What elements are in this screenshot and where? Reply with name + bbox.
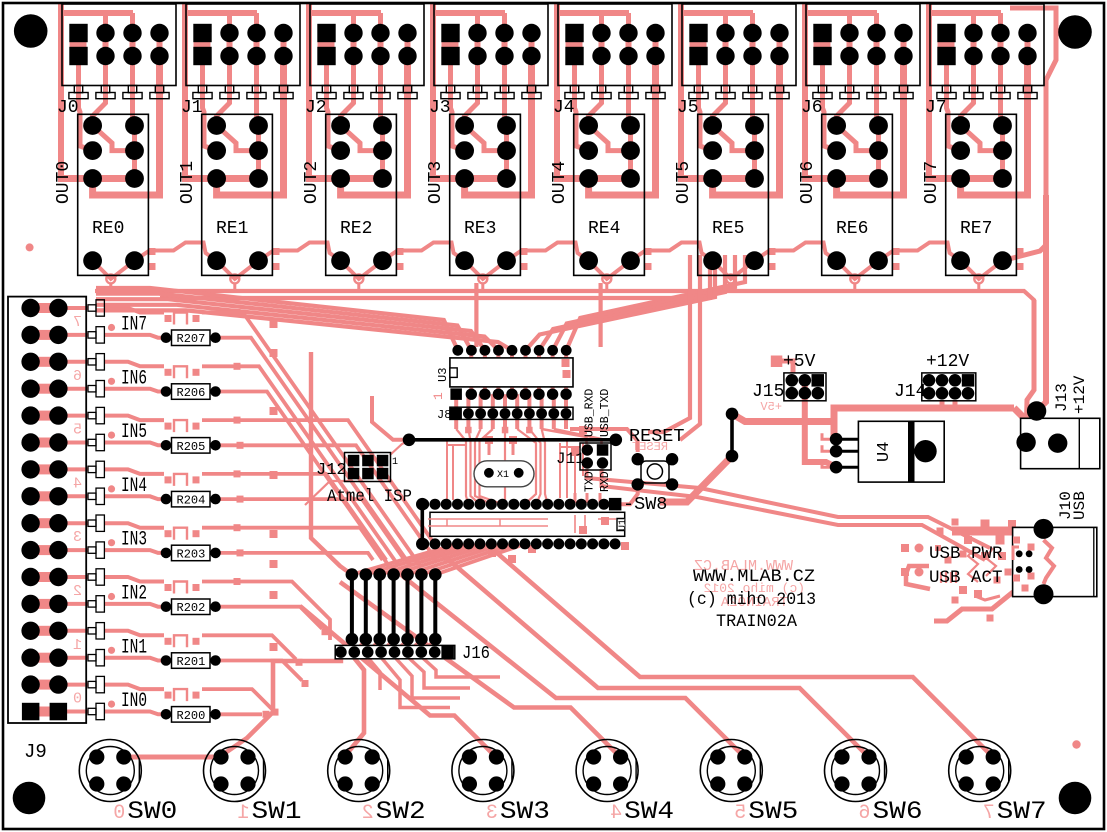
svg-text:IN4: IN4	[121, 475, 147, 498]
svg-text:RE6: RE6	[836, 219, 868, 239]
svg-text:(c) miho 2013: (c) miho 2013	[687, 590, 816, 610]
svg-text:3: 3	[73, 529, 82, 546]
svg-text:5: 5	[73, 422, 82, 439]
svg-text:5: 5	[734, 802, 746, 825]
svg-text:RE0: RE0	[92, 219, 124, 239]
svg-text:RE2: RE2	[340, 219, 372, 239]
svg-text:J1: J1	[181, 98, 203, 118]
svg-text:IN0: IN0	[121, 690, 147, 713]
svg-text:SW6: SW6	[873, 797, 923, 826]
svg-text:R202: R202	[177, 601, 206, 615]
svg-text:J7: J7	[925, 98, 947, 118]
svg-text:0: 0	[113, 802, 125, 825]
svg-text:R200: R200	[177, 709, 206, 723]
svg-text:1: 1	[237, 802, 249, 825]
svg-text:SW0: SW0	[127, 797, 177, 826]
svg-text:USB ACT: USB ACT	[929, 568, 1003, 588]
svg-text:J0: J0	[57, 98, 79, 118]
svg-text:RE1: RE1	[216, 219, 248, 239]
svg-text:OUT5: OUT5	[674, 161, 694, 204]
svg-text:RE4: RE4	[588, 219, 620, 239]
svg-text:OUT2: OUT2	[302, 161, 322, 204]
svg-text:X1: X1	[497, 470, 509, 481]
svg-text:SW3: SW3	[500, 797, 550, 826]
svg-text:USB: USB	[1071, 491, 1089, 520]
svg-text:Atmel ISP: Atmel ISP	[327, 487, 412, 507]
svg-text:WWW.MLAB.CZ: WWW.MLAB.CZ	[693, 567, 815, 587]
svg-text:J12: J12	[316, 461, 347, 480]
svg-text:J6: J6	[801, 98, 823, 118]
svg-text:RE5: RE5	[712, 219, 744, 239]
svg-text:SW5: SW5	[748, 797, 798, 826]
svg-text:SW1: SW1	[252, 797, 302, 826]
svg-text:RXD: RXD	[599, 471, 612, 492]
svg-text:6: 6	[858, 802, 870, 825]
svg-text:IN2: IN2	[121, 583, 147, 606]
svg-text:J15: J15	[752, 382, 784, 402]
svg-text:+5V: +5V	[783, 352, 816, 372]
svg-text:SW2: SW2	[376, 797, 426, 826]
svg-text:1: 1	[392, 457, 398, 468]
svg-text:R205: R205	[177, 440, 206, 454]
svg-text:SW4: SW4	[624, 797, 674, 826]
svg-text:7: 7	[983, 802, 995, 825]
svg-text:OUT3: OUT3	[426, 161, 446, 204]
svg-text:J5: J5	[677, 98, 699, 118]
svg-text:J13: J13	[1053, 383, 1071, 412]
svg-text:R207: R207	[177, 332, 206, 346]
svg-text:J8: J8	[437, 408, 451, 422]
svg-text:IN3: IN3	[121, 529, 147, 552]
svg-text:USB_RXD: USB_RXD	[584, 389, 597, 437]
svg-text:R203: R203	[177, 547, 206, 561]
svg-text:IN6: IN6	[121, 367, 147, 390]
svg-text:IN7: IN7	[121, 314, 147, 337]
svg-text:J9: J9	[24, 741, 47, 763]
svg-text:IN5: IN5	[121, 421, 147, 444]
svg-text:7: 7	[73, 314, 82, 331]
svg-text:+12V: +12V	[926, 352, 969, 372]
svg-text:-SW8: -SW8	[623, 494, 667, 515]
svg-text:+12V: +12V	[1071, 375, 1089, 414]
svg-text:TRAIN02A: TRAIN02A	[716, 612, 797, 632]
svg-text:OUT0: OUT0	[54, 161, 74, 204]
svg-text:J14: J14	[894, 382, 926, 402]
svg-text:4: 4	[610, 802, 622, 825]
svg-text:R204: R204	[177, 494, 206, 508]
svg-text:+5V: +5V	[760, 400, 782, 414]
svg-text:TXD: TXD	[584, 471, 597, 492]
svg-text:IN1: IN1	[121, 636, 147, 659]
svg-text:OUT1: OUT1	[178, 161, 198, 204]
svg-text:RESET: RESET	[629, 426, 685, 447]
svg-text:0: 0	[73, 691, 82, 708]
svg-text:3: 3	[486, 802, 498, 825]
svg-text:OUT4: OUT4	[550, 161, 570, 204]
svg-text:J4: J4	[553, 98, 575, 118]
svg-text:2: 2	[362, 802, 374, 825]
svg-text:SW7: SW7	[997, 797, 1047, 826]
svg-text:2: 2	[73, 583, 82, 600]
svg-text:U4: U4	[875, 442, 894, 462]
svg-text:RE3: RE3	[464, 219, 496, 239]
svg-text:USB_TXD: USB_TXD	[599, 389, 612, 437]
svg-text:J16: J16	[462, 644, 490, 664]
svg-text:J11: J11	[556, 450, 585, 468]
svg-text:6: 6	[73, 368, 82, 385]
svg-text:USB PWR: USB PWR	[929, 544, 1003, 564]
svg-text:J3: J3	[429, 98, 451, 118]
svg-text:U1: U1	[618, 519, 629, 531]
svg-text:J2: J2	[305, 98, 327, 118]
svg-text:OUT6: OUT6	[798, 161, 818, 204]
svg-text:R201: R201	[177, 655, 206, 669]
svg-text:4: 4	[73, 475, 82, 492]
svg-text:U3: U3	[436, 368, 450, 382]
svg-text:RE7: RE7	[960, 219, 992, 239]
svg-text:1: 1	[431, 392, 446, 400]
svg-text:R206: R206	[177, 386, 206, 400]
svg-text:1: 1	[73, 637, 82, 654]
svg-text:OUT7: OUT7	[922, 161, 942, 204]
